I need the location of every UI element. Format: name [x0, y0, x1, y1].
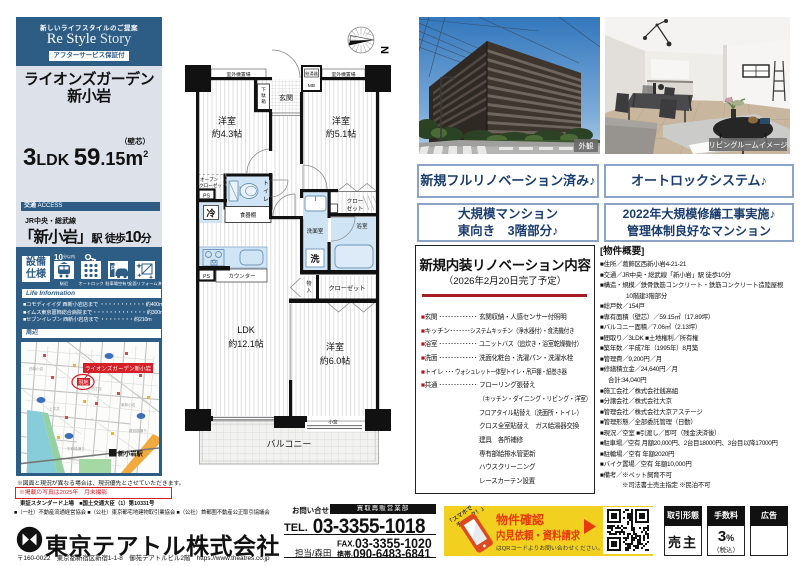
svg-text:給湯器: 給湯器 — [305, 70, 318, 77]
svg-text:バルコニー: バルコニー — [267, 439, 312, 449]
svg-text:小窓: 小窓 — [328, 419, 338, 426]
svg-text:クローゼット: クローゼット — [199, 182, 227, 189]
svg-text:浴室: 浴室 — [356, 222, 368, 230]
svg-text:イ: イ — [263, 189, 269, 195]
svg-text:MB: MB — [308, 83, 315, 89]
svg-text:洋室: 洋室 — [218, 115, 236, 126]
svg-text:レ: レ — [263, 197, 269, 203]
svg-text:洗: 洗 — [310, 253, 319, 264]
svg-text:箱: 箱 — [261, 98, 266, 105]
svg-text:物: 物 — [306, 280, 311, 287]
svg-text:洗面室: 洗面室 — [307, 227, 324, 235]
svg-text:ト: ト — [263, 181, 269, 187]
svg-text:N: N — [378, 46, 390, 54]
svg-text:PS: PS — [203, 274, 210, 280]
svg-text:ゼット: ゼット — [347, 205, 364, 213]
svg-text:洋室: 洋室 — [332, 115, 350, 126]
svg-text:室外機置場: 室外機置場 — [227, 71, 251, 78]
svg-text:約12.1帖: 約12.1帖 — [228, 338, 264, 349]
svg-text:冷: 冷 — [206, 208, 215, 219]
svg-text:室外機置場: 室外機置場 — [332, 71, 356, 78]
svg-text:LDK: LDK — [237, 325, 255, 335]
svg-text:入: 入 — [306, 288, 311, 294]
svg-text:クローゼット: クローゼット — [328, 285, 365, 293]
svg-text:駄: 駄 — [261, 92, 266, 99]
svg-text:約5.1帖: 約5.1帖 — [326, 128, 357, 139]
svg-text:洋室: 洋室 — [326, 341, 344, 352]
svg-text:食器棚: 食器棚 — [240, 211, 256, 219]
svg-text:クロー: クロー — [347, 198, 364, 205]
svg-text:約6.0帖: 約6.0帖 — [320, 355, 351, 366]
svg-text:カウンター: カウンター — [229, 272, 256, 280]
svg-text:約4.3帖: 約4.3帖 — [212, 128, 243, 139]
svg-text:PS: PS — [203, 194, 210, 200]
svg-text:玄関: 玄関 — [279, 93, 293, 102]
